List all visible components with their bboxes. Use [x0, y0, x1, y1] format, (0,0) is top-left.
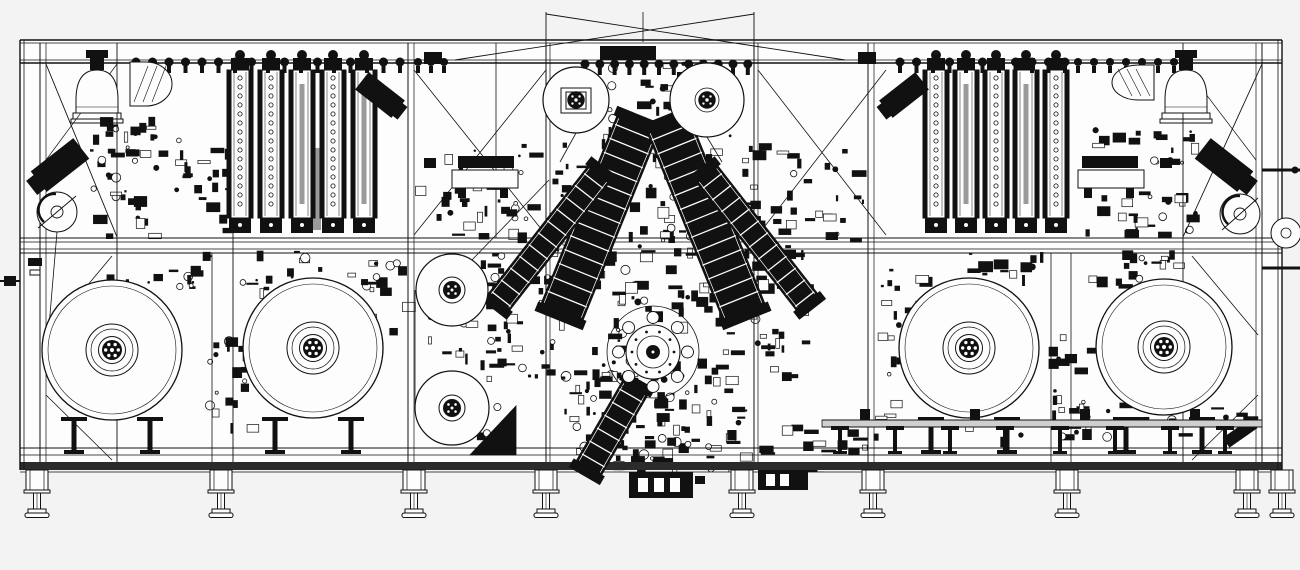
- top-pulley: [670, 63, 744, 137]
- track-tower: [1013, 50, 1039, 233]
- track-tower: [289, 50, 315, 233]
- machine-leg: [208, 470, 234, 518]
- top-pulley: [543, 67, 609, 133]
- machine-leg: [24, 470, 50, 518]
- track-tower: [923, 50, 949, 233]
- machine-leg: [533, 470, 559, 518]
- guide-roller: [415, 371, 489, 445]
- frame-bottom-band: [20, 462, 1282, 470]
- machine-leg: [401, 470, 427, 518]
- track-tower: [953, 50, 979, 233]
- unwind-reel: [899, 278, 1039, 418]
- machine-leg: [860, 470, 886, 518]
- machine-leg: [729, 470, 755, 518]
- under-frame-boxes: [629, 470, 808, 498]
- unwind-reel: [1096, 279, 1232, 415]
- track-tower: [227, 50, 253, 233]
- machine-leg: [1054, 470, 1080, 518]
- cad-line-drawing-canvas: [0, 0, 1300, 570]
- unwind-reel: [243, 278, 383, 418]
- machine-leg: [1234, 470, 1260, 518]
- guide-roller: [416, 254, 488, 326]
- machine-assembly-drawing: [0, 0, 1300, 570]
- track-tower: [258, 50, 284, 233]
- machine-leg: [1269, 470, 1295, 518]
- track-tower: [983, 50, 1009, 233]
- track-tower: [320, 50, 346, 233]
- unwind-reel: [42, 280, 182, 420]
- track-tower: [1043, 50, 1069, 233]
